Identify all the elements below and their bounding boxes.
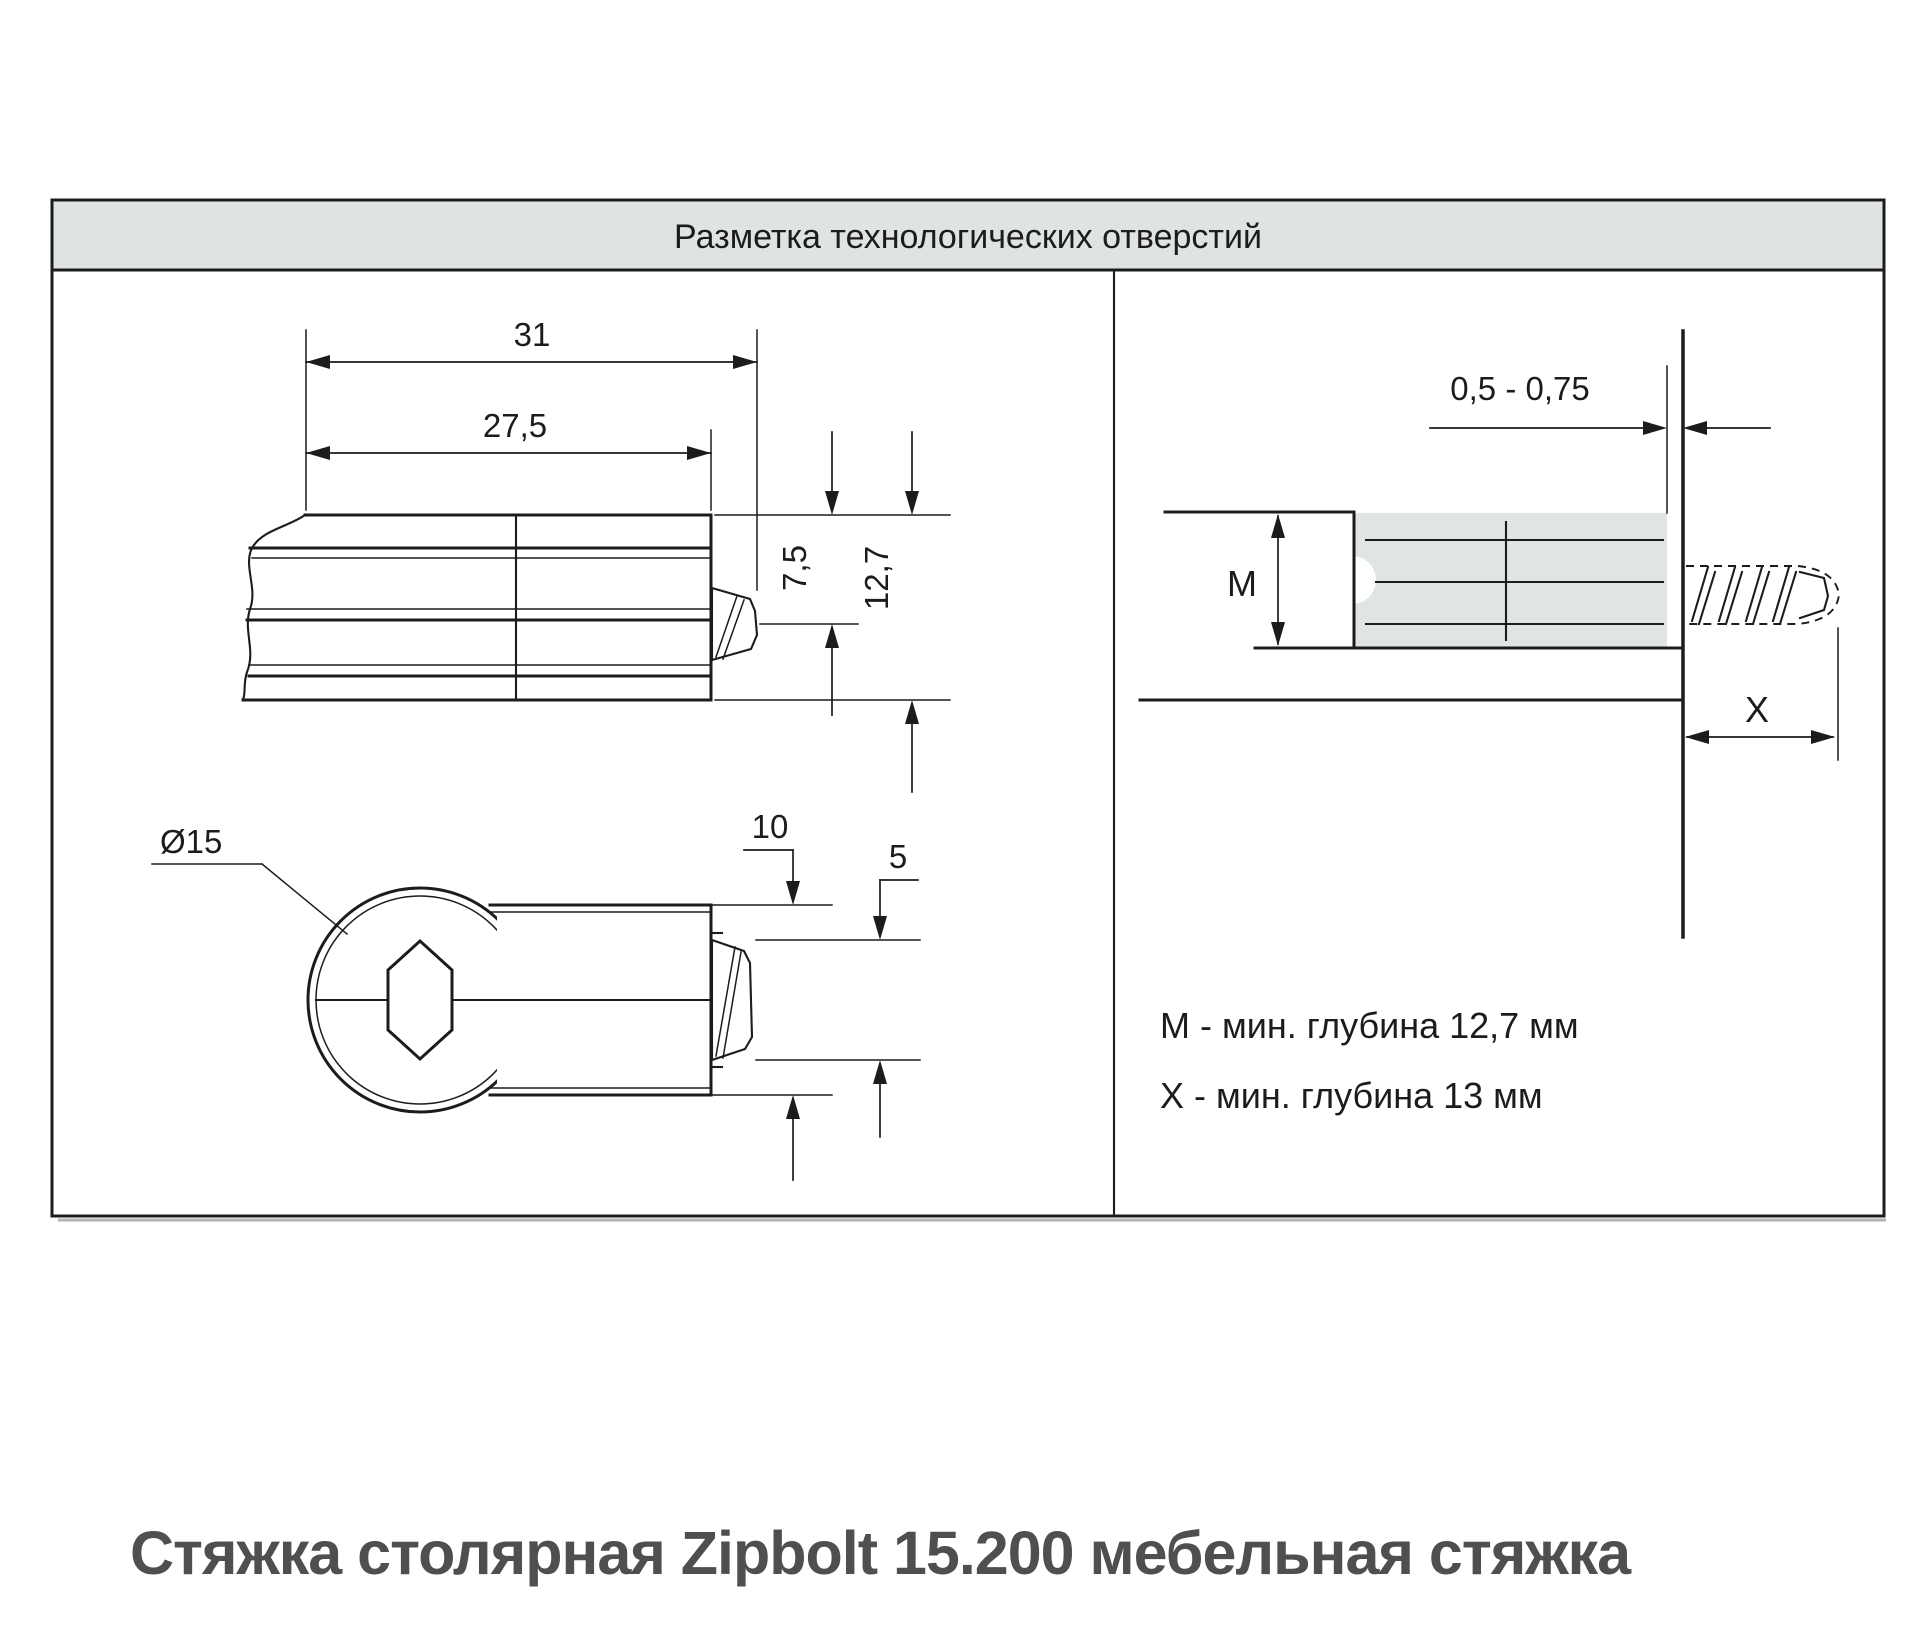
page-title: Разметка технологических отверстий bbox=[674, 218, 1262, 256]
dim-label: 5 bbox=[889, 838, 907, 875]
drawing-frame: Разметка технологических отверстий bbox=[52, 200, 1886, 1220]
dim-label: Ø15 bbox=[160, 823, 222, 860]
dim-label: М bbox=[1227, 563, 1257, 604]
note-x: Х - мин. глубина 13 мм bbox=[1160, 1075, 1543, 1116]
bolt-shading bbox=[1354, 513, 1667, 647]
dim-label: 10 bbox=[752, 808, 789, 845]
dim-label: 7,5 bbox=[776, 545, 813, 591]
embedded-bolt bbox=[1328, 513, 1667, 647]
socket-notch bbox=[1328, 556, 1376, 604]
technical-drawing: Разметка технологических отверстий bbox=[0, 0, 1920, 1650]
page: Разметка технологических отверстий bbox=[0, 0, 1920, 1650]
note-m: М - мин. глубина 12,7 мм bbox=[1160, 1005, 1579, 1046]
dim-label: 27,5 bbox=[483, 407, 547, 444]
dim-label: 31 bbox=[514, 316, 551, 353]
dim-label: 12,7 bbox=[858, 546, 895, 610]
dim-label: X bbox=[1745, 689, 1769, 730]
product-caption: Стяжка столярная Zipbolt 15.200 мебельна… bbox=[60, 1518, 1700, 1588]
dim-label: 0,5 - 0,75 bbox=[1450, 370, 1589, 407]
